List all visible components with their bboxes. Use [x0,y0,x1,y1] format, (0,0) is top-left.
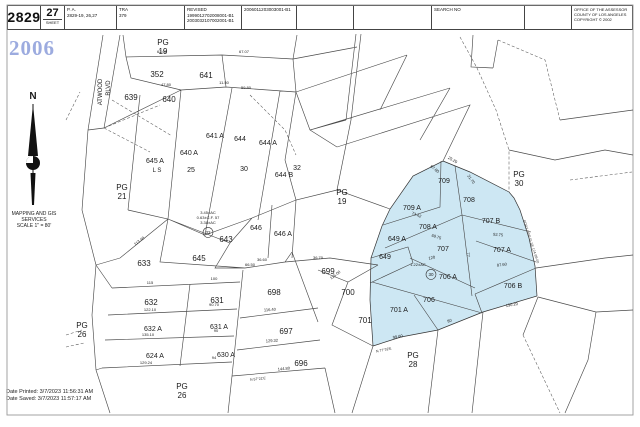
parcel-label: 697 [279,327,293,336]
dimension: 129.24 [140,360,153,365]
dimension: N 77°32'E [376,346,393,353]
parcel-label: PG [513,170,525,179]
parcel-label: 352 [150,70,164,79]
dimension: 129.32 [266,338,279,344]
parcel-label: 645 [192,254,206,263]
parcel-label: 706 [423,297,435,304]
dimension: 116.40 [264,307,277,313]
parcel-label: 633 [137,259,151,268]
parcel-label: 700 [341,288,355,297]
dimension: 135.10 [142,332,155,337]
parcel-label: 25 [187,167,195,174]
parcel-label: 709 [438,178,450,185]
parcel-label: PG [76,321,88,330]
dimension: 130.20 [505,301,519,308]
parcel-label: 701 A [390,307,408,314]
parcel-label: 707 [437,246,449,253]
parcel-label: 707 B [482,218,501,225]
parcel-label: 32 [293,165,301,172]
parcel-label: 643 [219,235,233,244]
parcel-label: 641 [199,71,213,80]
parcel-label: 644 [234,136,246,143]
parcel-label: 21 [118,192,127,201]
parcel-label: 3.38±AC [200,220,216,225]
parcel-label: 30 [428,272,434,277]
dimension: 90.70 [209,302,220,307]
street-label: ATWOOD [98,78,104,105]
parcel-label: 632 [144,298,158,307]
parcel-label: PG [176,382,188,391]
dimension: 67.07 [239,49,250,54]
parcel-label: L S [153,168,162,174]
parcel-label: PG [116,183,128,192]
north-arrow-icon [26,104,40,205]
parcel-label: 26 [78,330,87,339]
parcel-lines [82,34,633,413]
parcel-label: 706 B [504,283,523,290]
parcel-label: 19 [338,197,347,206]
dimension: 90 [214,328,219,333]
north-label: N [29,91,36,102]
parcel-label: 644 A [259,140,277,147]
dimension: 59.80 [241,85,252,90]
parcel-label: 624 A [146,353,164,360]
parcel-label: PG [157,38,169,47]
parcel-label: PG [336,188,348,197]
dimension: 115 [147,280,154,285]
dimension: N 57°21'E [250,376,267,382]
dimension: 144.80 [277,365,290,371]
parcel-label: 640 [162,95,176,104]
parcel-label: 646 A [274,231,292,238]
dimension: 99.60 [392,333,403,340]
parcel-label: 26 [178,391,187,400]
dimension: 36.60 [257,257,268,262]
dimension: 94 [212,355,217,360]
parcel-label: PG [407,351,419,360]
dimension: 47.80 [161,82,172,87]
parcel-label: 639 [124,93,138,102]
parcel-label: 30 [515,179,524,188]
assessor-map-sheet: 2829 27 SHEET P. A. 2829-19, 26,27 TRA 3… [0,0,640,427]
sheet-border [7,5,633,415]
parcel-label: 649 [379,254,391,261]
parcel-label: 630 A [217,352,235,359]
parcel-label: 631 A [210,324,228,331]
parcel-label: 701 [358,316,372,325]
dimension: 122.10 [144,307,157,312]
parcel-label: 646 [250,225,262,232]
parcel-label: 706 A [439,274,457,281]
parcel-label: 696 [294,359,308,368]
street-label: BLVD [106,80,112,96]
dimension: 113.48 [133,235,146,247]
map-canvas: NPG19ATWOODBLVD352641639640641 A644644 A… [0,0,640,427]
parcel-label: 707 A [493,247,511,254]
parcel-label: 1.22±AC [410,262,426,267]
dimension: 11.50 [219,80,229,85]
dimension: 36.70 [313,255,324,260]
parcel-label: 649 A [388,236,406,243]
parcel-label: 708 [463,197,475,204]
parcel-label: 30 [240,166,248,173]
dimension: 62.60 [157,49,168,54]
parcel-label: 32 [205,230,211,235]
parcel-label: 28 [409,360,418,369]
parcel-label: 641 A [206,133,224,140]
parcel-label: 640 A [180,150,198,157]
dimension: 100 [211,276,218,281]
dimension: 66.50 [245,262,256,267]
parcel-label: 708 A [419,224,437,231]
parcel-label: 644 B [275,172,294,179]
parcel-label: 645 A [146,158,164,165]
parcel-label: 698 [267,288,281,297]
